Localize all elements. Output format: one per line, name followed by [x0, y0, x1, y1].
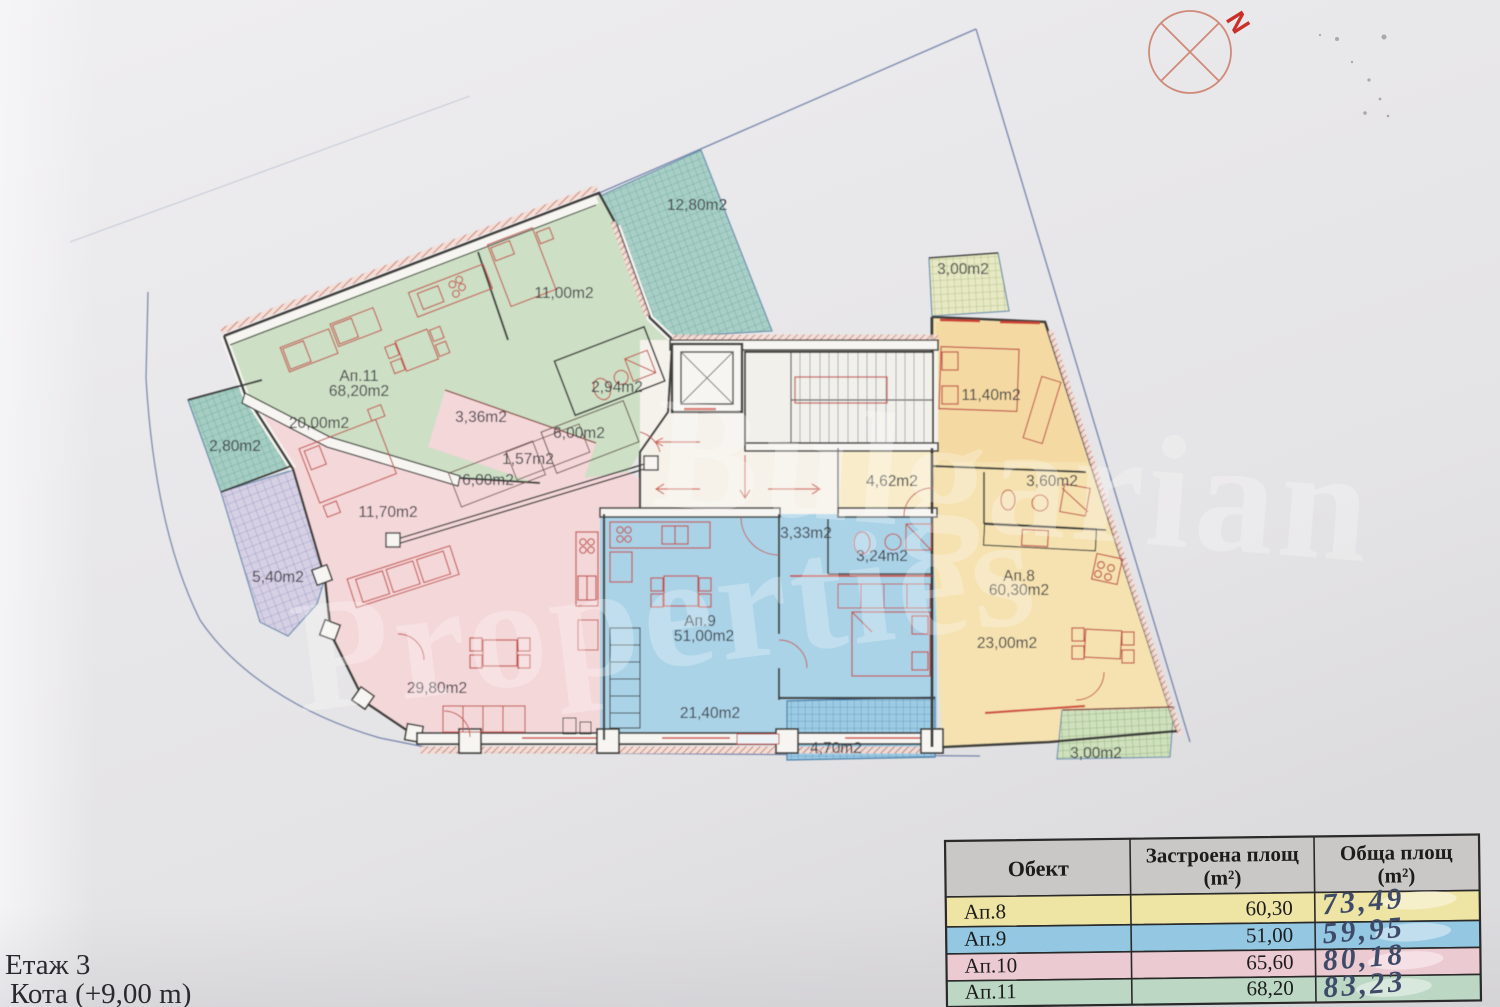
svg-text:11,00m2: 11,00m2: [534, 285, 593, 302]
svg-text:3,36m2: 3,36m2: [455, 409, 507, 426]
svg-text:4,70m2: 4,70m2: [810, 740, 862, 757]
svg-text:20,00m2: 20,00m2: [289, 415, 349, 432]
svg-text:Ап.8: Ап.8: [964, 899, 1006, 924]
svg-text:Ап.10: Ап.10: [964, 953, 1017, 978]
svg-text:12,80m2: 12,80m2: [667, 197, 727, 214]
svg-text:2,94m2: 2,94m2: [591, 379, 643, 396]
svg-text:1,57m2: 1,57m2: [502, 451, 554, 468]
svg-text:Обща площ: Обща площ: [1340, 840, 1453, 865]
svg-text:83,23: 83,23: [1322, 965, 1407, 1005]
svg-text:68,20m2: 68,20m2: [329, 383, 389, 400]
svg-text:68,20: 68,20: [1246, 976, 1294, 1001]
svg-text:(m²): (m²): [1203, 865, 1241, 889]
svg-text:3,00m2: 3,00m2: [937, 261, 989, 278]
svg-text:21,40m2: 21,40m2: [680, 705, 740, 722]
svg-text:Обект: Обект: [1008, 855, 1070, 881]
svg-text:Кота (+9,00 m): Кота (+9,00 m): [10, 978, 191, 1007]
svg-text:6,00m2: 6,00m2: [462, 472, 514, 489]
svg-text:Етаж 3: Етаж 3: [5, 949, 90, 981]
svg-text:11,70m2: 11,70m2: [358, 504, 417, 521]
svg-text:6,00m2: 6,00m2: [553, 425, 605, 442]
svg-text:2,80m2: 2,80m2: [209, 438, 261, 455]
svg-text:51,00: 51,00: [1246, 923, 1294, 948]
svg-text:65,60: 65,60: [1246, 950, 1294, 975]
svg-text:60,30: 60,30: [1245, 896, 1293, 921]
svg-text:Застроена площ: Застроена площ: [1146, 842, 1299, 868]
svg-text:Ап.9: Ап.9: [964, 926, 1006, 951]
svg-text:Ап.11: Ап.11: [965, 979, 1017, 1004]
svg-text:3,00m2: 3,00m2: [1070, 745, 1122, 762]
